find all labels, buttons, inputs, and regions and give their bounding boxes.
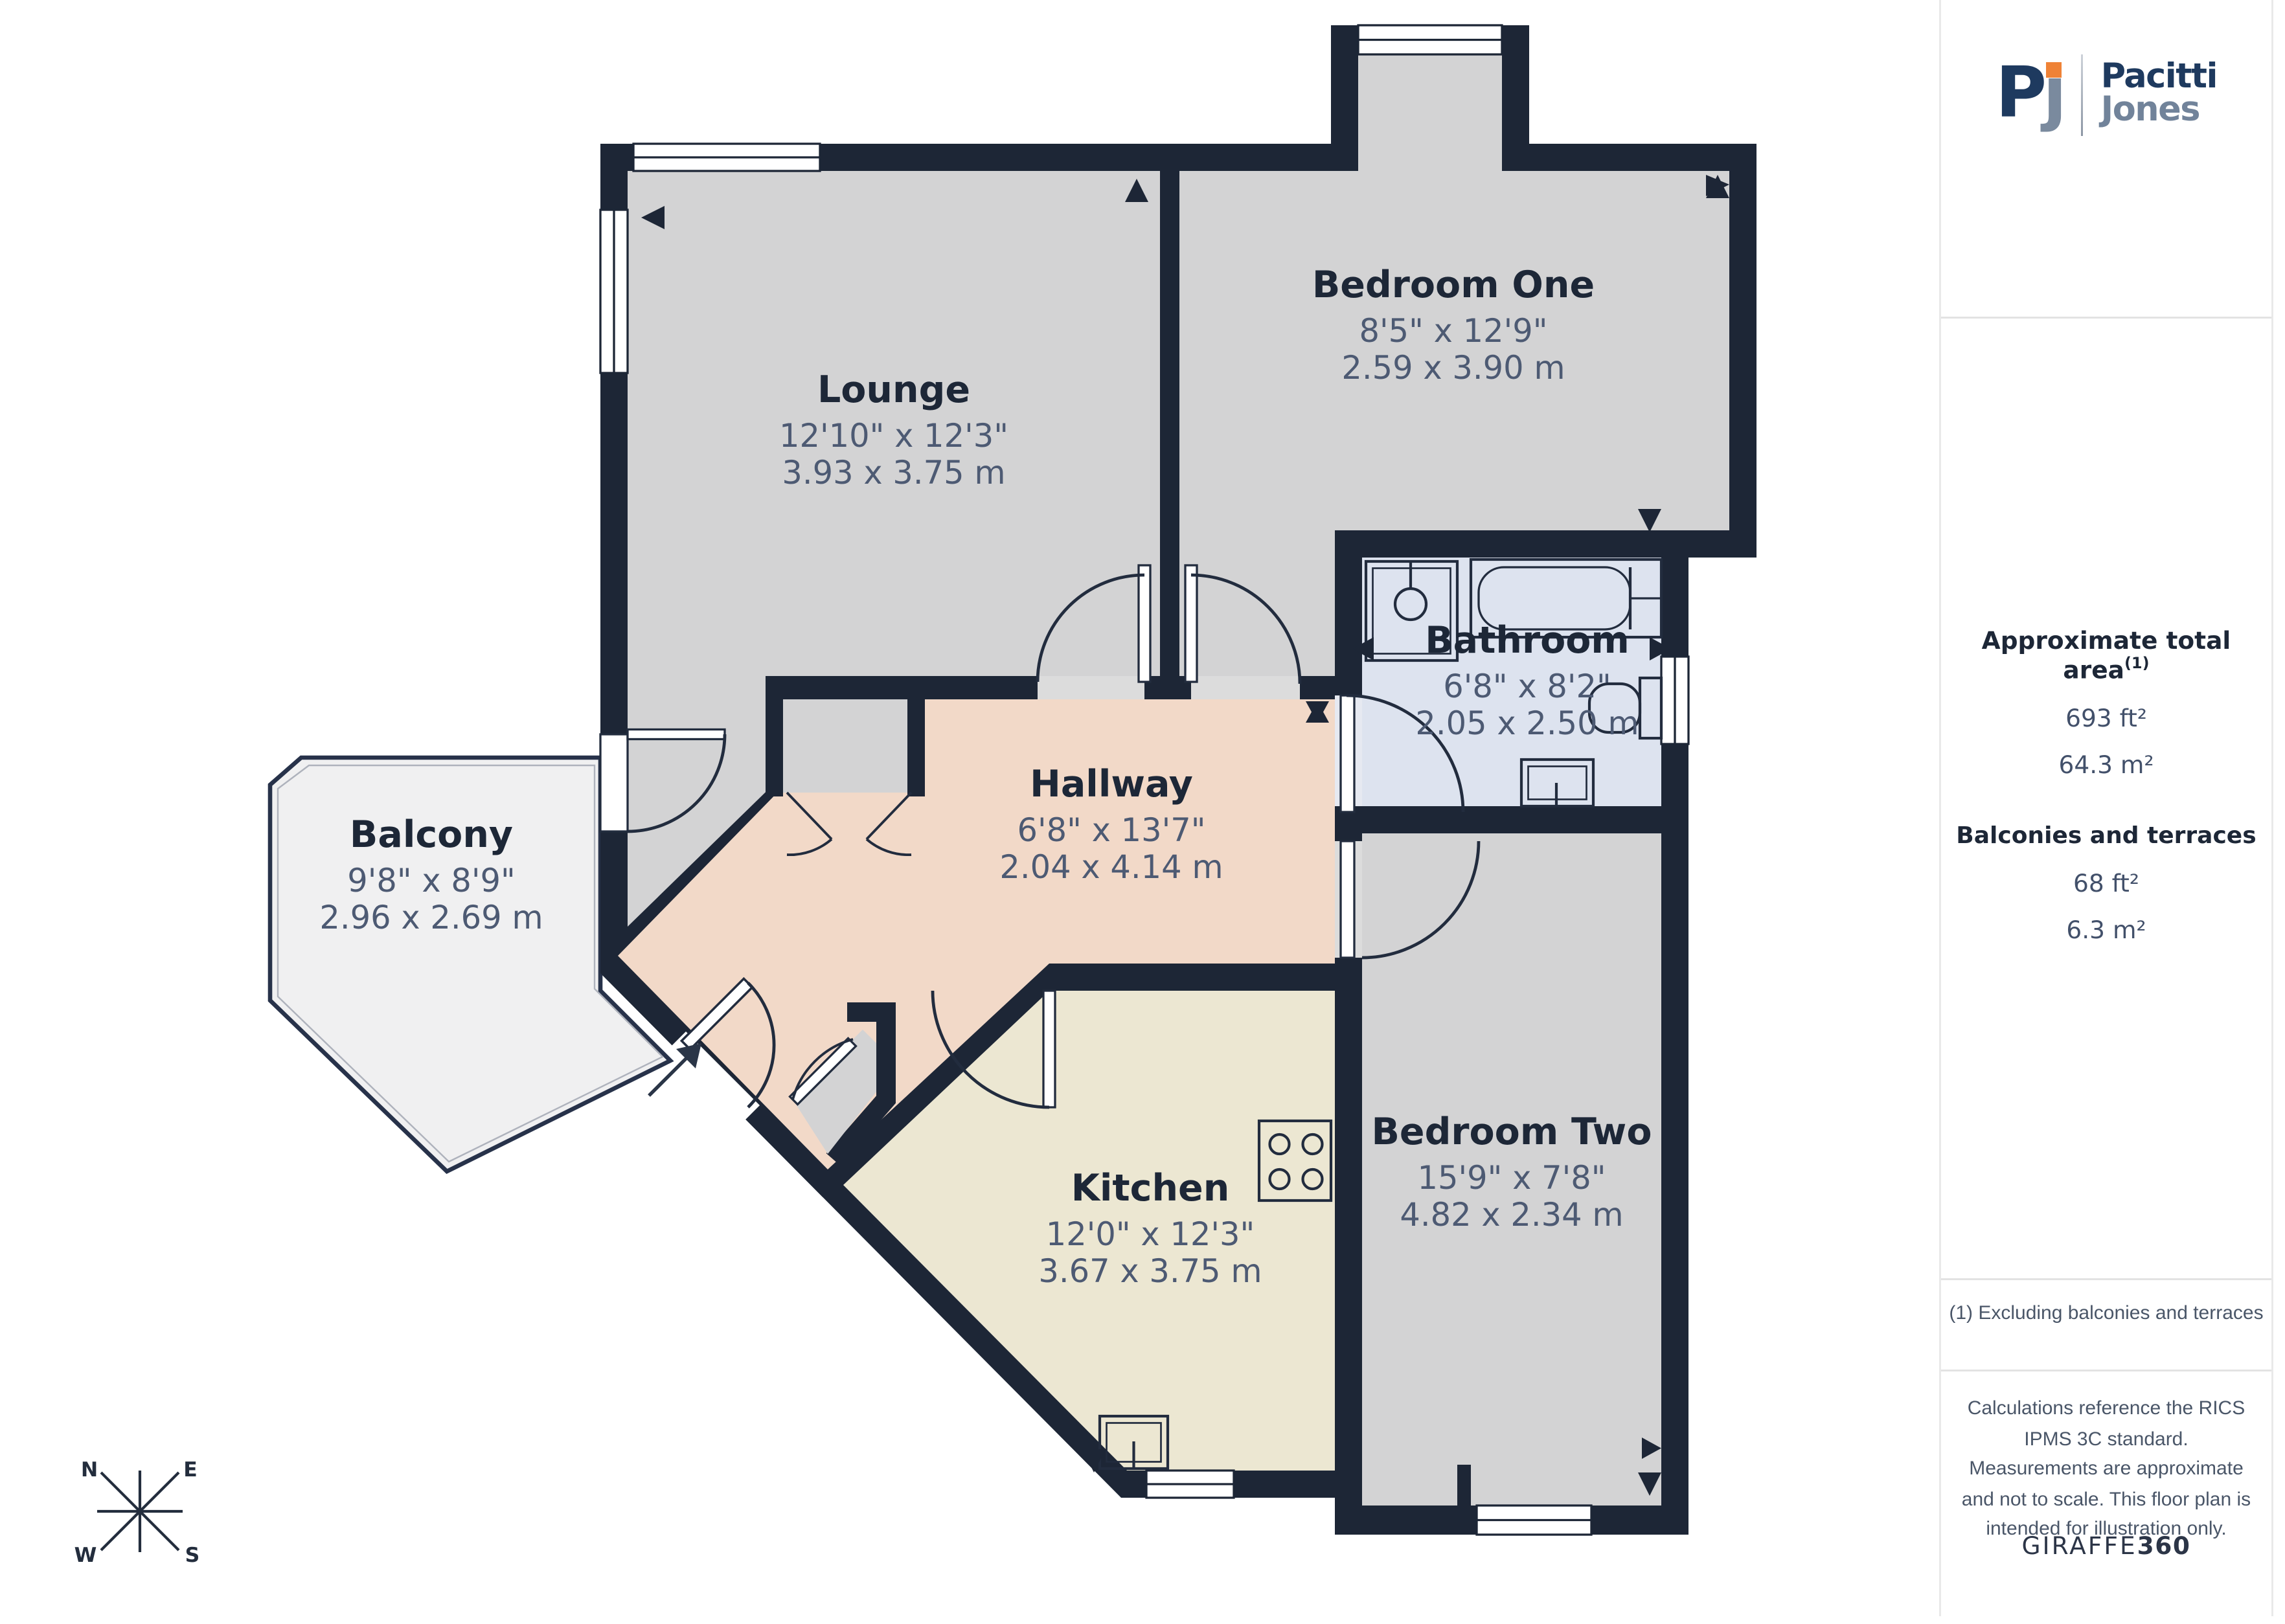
sidebar-divider-3 [1941, 1370, 2271, 1371]
footnote-text: (1) Excluding balconies and terraces [1941, 1303, 2271, 1325]
svg-text:Bathroom: Bathroom [1425, 619, 1630, 662]
compass-rose: N E W S [74, 1458, 200, 1567]
total-area-label: Approximate total area(1) [1941, 626, 2271, 684]
area-summary: Approximate total area(1) 693 ft² 64.3 m… [1941, 626, 2271, 962]
lounge-top-window [633, 144, 820, 171]
bedroom-two-window [1477, 1506, 1591, 1535]
disclaimer-text: Calculations reference the RICS IPMS 3C … [1959, 1395, 2254, 1546]
total-area-m: 64.3 m² [1941, 750, 2271, 779]
logo-orange-dot-icon [2045, 62, 2061, 77]
svg-text:Kitchen: Kitchen [1071, 1167, 1230, 1210]
svg-text:Bedroom Two: Bedroom Two [1371, 1111, 1652, 1153]
svg-text:2.04 x 4.14 m: 2.04 x 4.14 m [999, 848, 1223, 886]
svg-text:12'10" x 12'3": 12'10" x 12'3" [779, 417, 1008, 455]
svg-text:8'5" x 12'9": 8'5" x 12'9" [1359, 312, 1548, 350]
svg-text:3.67 x 3.75 m: 3.67 x 3.75 m [1038, 1252, 1262, 1290]
svg-text:6'8" x 8'2": 6'8" x 8'2" [1443, 668, 1611, 705]
svg-text:9'8" x 8'9": 9'8" x 8'9" [347, 862, 516, 899]
compass-s: S [185, 1544, 200, 1567]
logo-name-line2: Jones [2101, 95, 2217, 128]
credit-360: 360 [2137, 1531, 2191, 1560]
label-kitchen: Kitchen 12'0" x 12'3" 3.67 x 3.75 m [1038, 1167, 1262, 1290]
balconies-ft: 68 ft² [1941, 868, 2271, 897]
svg-text:12'0" x 12'3": 12'0" x 12'3" [1046, 1215, 1255, 1253]
lounge-door-threshold [1038, 676, 1144, 699]
balconies-label: Balconies and terraces [1941, 822, 2271, 849]
label-balcony: Balcony 9'8" x 8'9" 2.96 x 2.69 m [319, 813, 543, 936]
compass-w: W [74, 1544, 97, 1567]
balconies-m: 6.3 m² [1941, 915, 2271, 944]
kitchen-window [1146, 1471, 1234, 1498]
compass-e: E [183, 1458, 198, 1482]
svg-text:Bedroom One: Bedroom One [1312, 264, 1595, 306]
logo-wordmark: Pacitti Jones [2101, 63, 2217, 128]
svg-text:6'8" x 13'7": 6'8" x 13'7" [1017, 811, 1206, 849]
lounge-left-window [600, 210, 628, 373]
giraffe360-credit: GIRAFFE360 [1941, 1531, 2271, 1560]
svg-text:3.93 x 3.75 m: 3.93 x 3.75 m [782, 454, 1005, 491]
logo-monogram: P ȷ [1995, 63, 2063, 126]
svg-text:2.59 x 3.90 m: 2.59 x 3.90 m [1341, 349, 1565, 387]
svg-text:Hallway: Hallway [1030, 763, 1193, 806]
compass-n: N [81, 1458, 98, 1482]
sidebar-divider-1 [1941, 317, 2271, 319]
pacitti-jones-logo: P ȷ Pacitti Jones [1941, 54, 2271, 136]
label-bathroom: Bathroom 6'8" x 8'2" 2.05 x 2.50 m [1415, 619, 1639, 742]
floorplan-page: N E W S Lounge 12'10" x 12'3" 3.93 x 3.7… [0, 0, 2285, 1616]
total-area-ft: 693 ft² [1941, 703, 2271, 732]
logo-name-line1: Pacitti [2101, 63, 2217, 95]
logo-letter-p: P [1995, 63, 2043, 126]
svg-text:15'9" x 7'8": 15'9" x 7'8" [1418, 1159, 1606, 1197]
svg-text:2.05 x 2.50 m: 2.05 x 2.50 m [1415, 705, 1639, 742]
bay-window-floor [1358, 54, 1502, 175]
info-sidebar: P ȷ Pacitti Jones Approximate total area… [1939, 0, 2273, 1616]
label-hallway: Hallway 6'8" x 13'7" 2.04 x 4.14 m [999, 763, 1223, 886]
bedroom-one-door-threshold [1191, 676, 1300, 699]
svg-text:Lounge: Lounge [817, 368, 970, 411]
bathroom-window [1661, 657, 1688, 744]
storage-alcove-floor [783, 699, 907, 793]
floorplan-drawing: N E W S Lounge 12'10" x 12'3" 3.93 x 3.7… [0, 0, 1939, 1616]
svg-text:2.96 x 2.69 m: 2.96 x 2.69 m [319, 899, 543, 936]
svg-text:4.82 x 2.34 m: 4.82 x 2.34 m [1400, 1196, 1623, 1234]
credit-giraffe: GIRAFFE [2022, 1531, 2137, 1560]
total-area-footnote-marker: (1) [2124, 655, 2150, 672]
logo-divider [2080, 54, 2084, 136]
sidebar-divider-2 [1941, 1278, 2271, 1280]
svg-text:Balcony: Balcony [350, 813, 513, 856]
bay-window [1358, 25, 1502, 54]
